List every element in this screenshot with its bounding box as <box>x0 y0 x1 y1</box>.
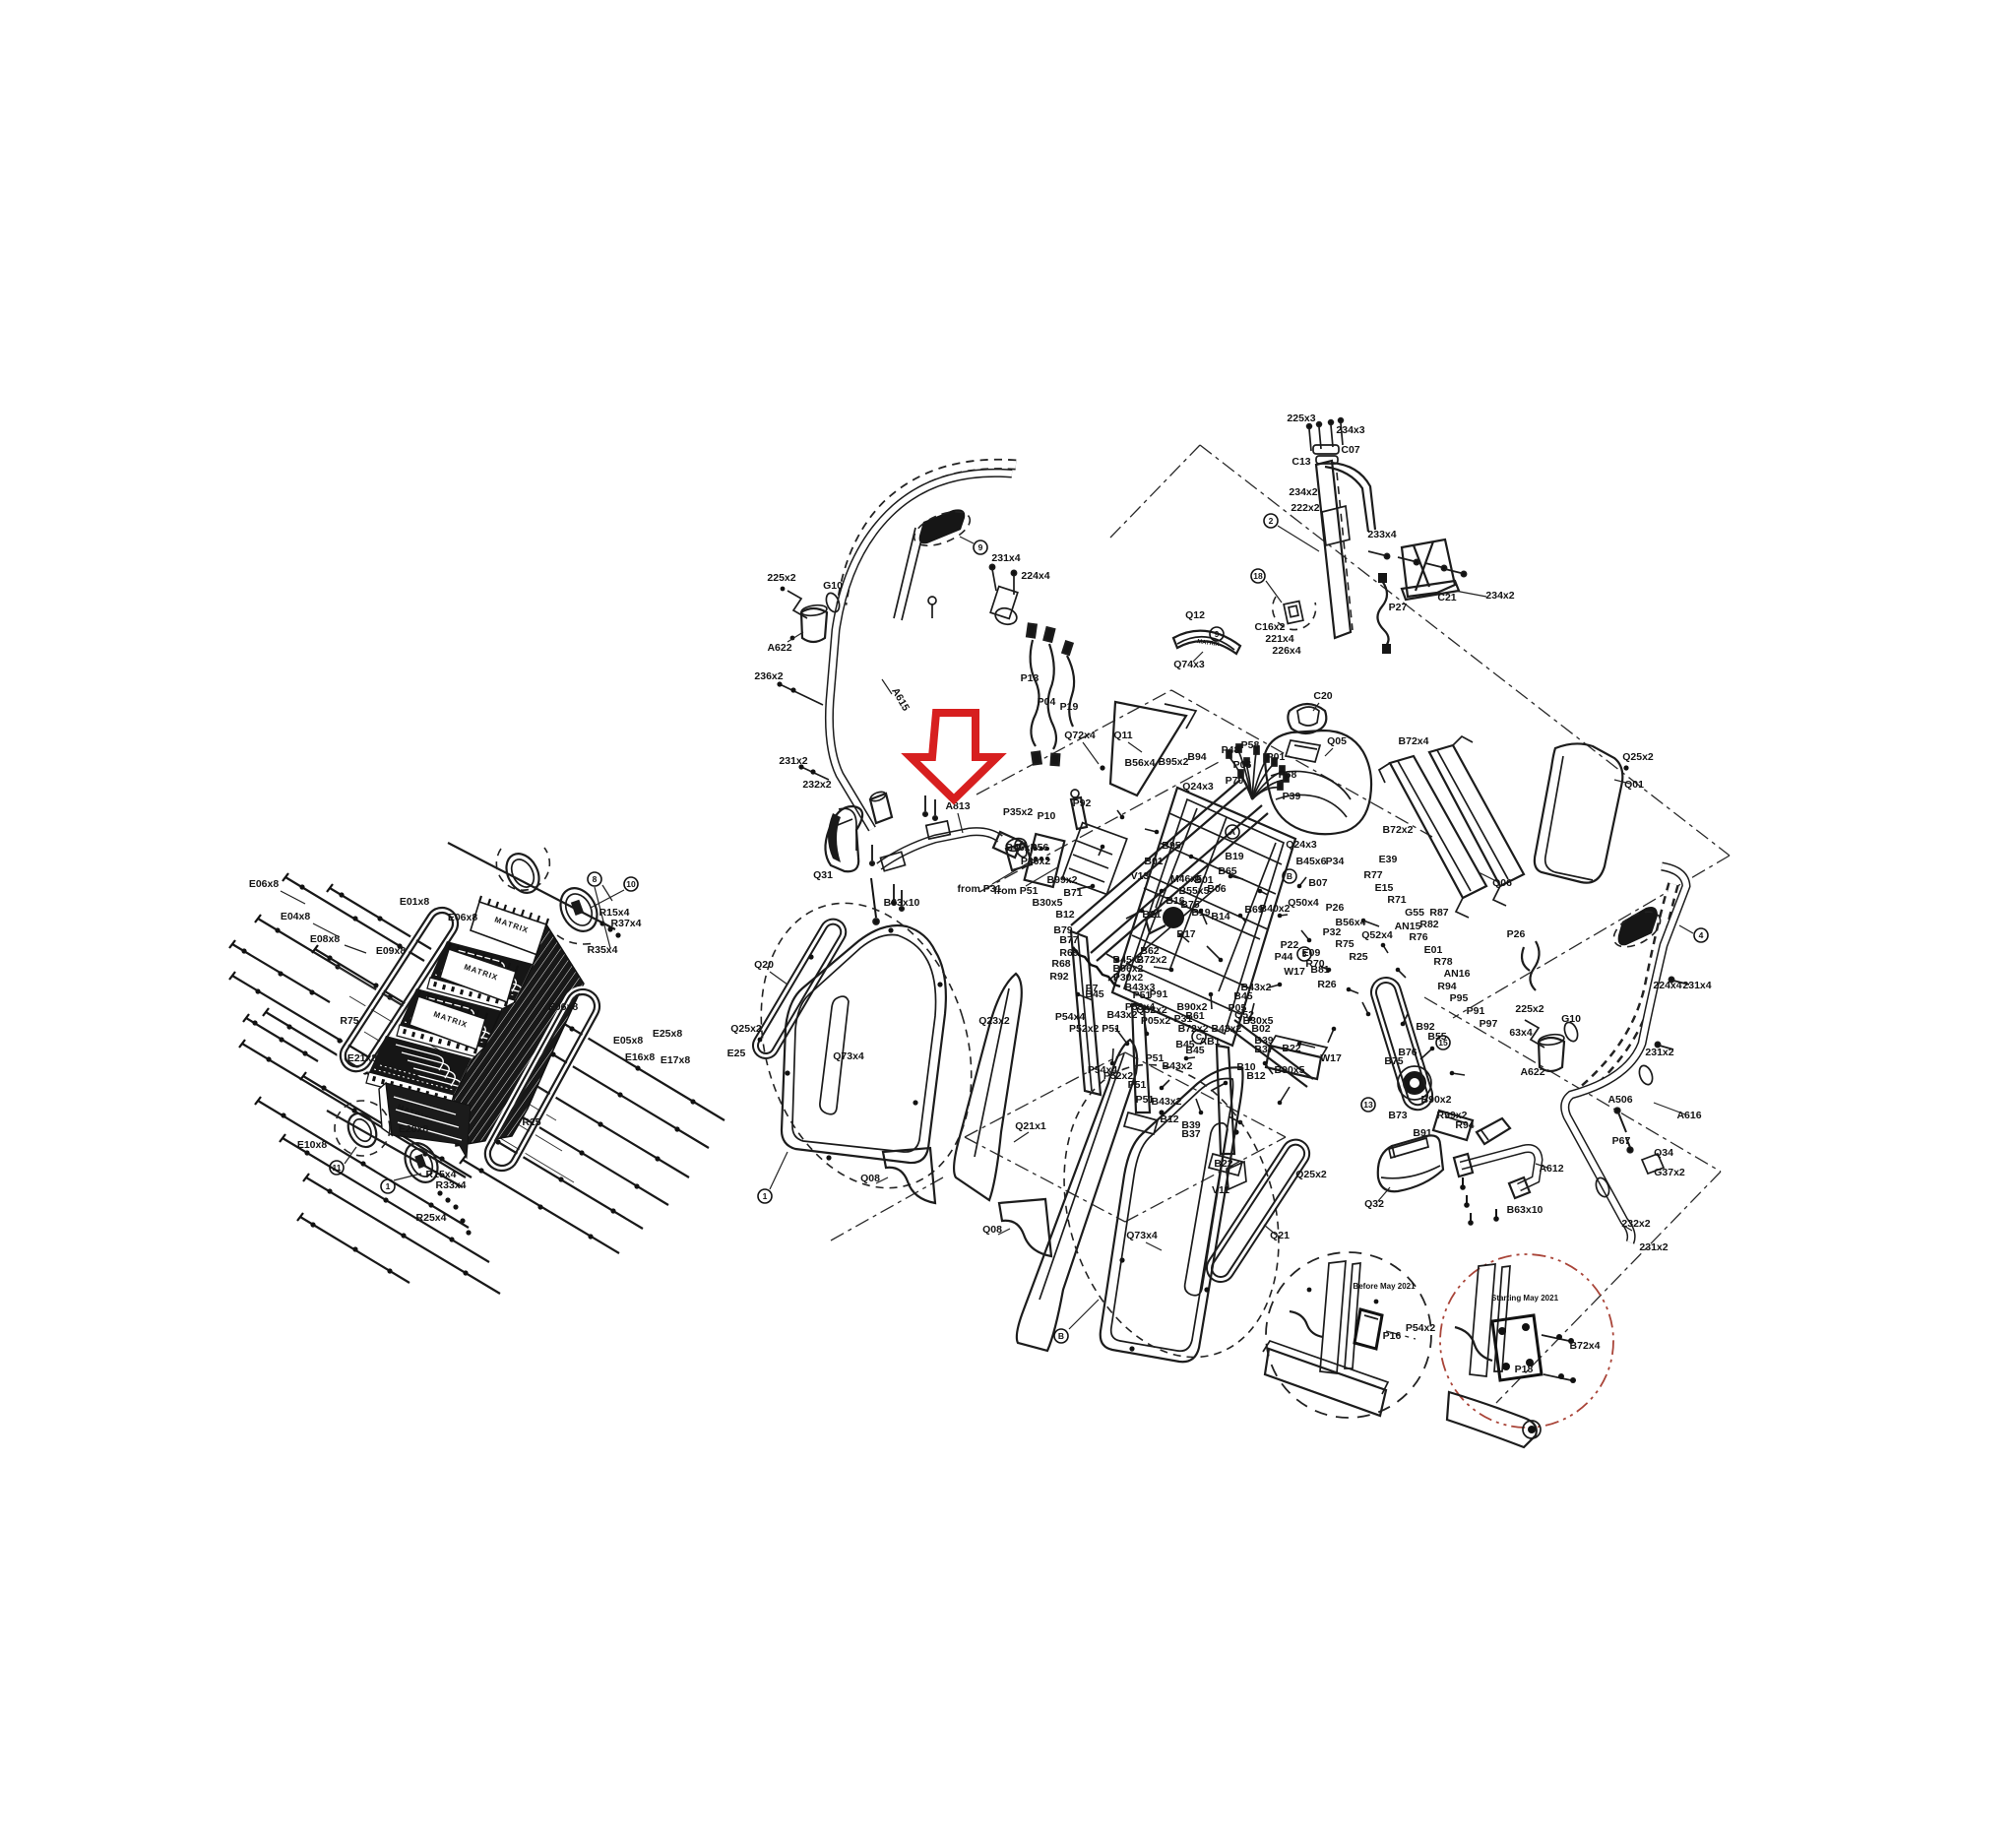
svg-text:B45x6: B45x6 <box>1296 856 1327 867</box>
svg-text:236x2: 236x2 <box>754 670 783 682</box>
svg-text:Q52x4: Q52x4 <box>1361 929 1393 941</box>
svg-text:G10: G10 <box>1561 1013 1581 1025</box>
svg-text:R77: R77 <box>1363 869 1382 881</box>
svg-text:E06x8: E06x8 <box>249 878 280 890</box>
svg-text:B: B <box>1058 1331 1064 1341</box>
svg-text:B99x2: B99x2 <box>1047 874 1078 886</box>
svg-text:231x2: 231x2 <box>779 755 807 767</box>
svg-text:P18: P18 <box>1515 1364 1534 1375</box>
svg-text:R94: R94 <box>1437 981 1456 992</box>
svg-text:221x4: 221x4 <box>1265 633 1293 645</box>
svg-text:13: 13 <box>1363 1100 1373 1110</box>
svg-text:P32: P32 <box>1323 926 1342 938</box>
svg-text:E04x8: E04x8 <box>281 911 311 922</box>
svg-text:B63x10: B63x10 <box>884 897 920 909</box>
svg-text:Q34: Q34 <box>1654 1147 1673 1159</box>
svg-text:A622: A622 <box>1520 1066 1544 1078</box>
svg-text:E21x8: E21x8 <box>347 1052 378 1064</box>
svg-text:R25x4: R25x4 <box>416 1212 447 1224</box>
svg-text:Q01: Q01 <box>1624 779 1644 791</box>
svg-text:P54x4: P54x4 <box>1055 1011 1086 1023</box>
svg-text:P27: P27 <box>1389 602 1408 613</box>
svg-text:B45: B45 <box>1185 1045 1204 1056</box>
svg-text:from P51: from P51 <box>994 885 1039 897</box>
svg-text:4: 4 <box>1699 930 1704 940</box>
svg-text:B37: B37 <box>1181 1128 1200 1140</box>
svg-text:234x2: 234x2 <box>1289 486 1317 498</box>
svg-text:Before May 2021: Before May 2021 <box>1353 1282 1416 1291</box>
svg-text:5: 5 <box>1302 949 1307 959</box>
svg-text:C20: C20 <box>1313 690 1332 702</box>
svg-text:P92: P92 <box>1073 797 1092 809</box>
svg-text:B07: B07 <box>1308 877 1327 889</box>
svg-text:231x2: 231x2 <box>1645 1047 1673 1058</box>
svg-text:225x2: 225x2 <box>767 572 795 584</box>
svg-text:B95: B95 <box>1162 840 1180 852</box>
svg-text:Q05: Q05 <box>1327 735 1347 747</box>
svg-text:R76: R76 <box>1409 931 1427 943</box>
svg-text:E01x8: E01x8 <box>400 896 430 908</box>
svg-text:P05x2: P05x2 <box>1141 1015 1171 1027</box>
svg-text:P26: P26 <box>1326 902 1345 914</box>
svg-text:P35x2: P35x2 <box>1003 806 1034 818</box>
svg-text:B21: B21 <box>1142 909 1161 921</box>
svg-text:Q50x4: Q50x4 <box>1288 897 1319 909</box>
svg-text:Starting May 2021: Starting May 2021 <box>1491 1294 1559 1303</box>
svg-text:R71: R71 <box>1387 894 1406 906</box>
svg-text:P36x2: P36x2 <box>1021 856 1051 867</box>
svg-text:W17: W17 <box>1284 966 1305 978</box>
svg-text:P58: P58 <box>1241 739 1260 751</box>
svg-text:B81: B81 <box>1310 964 1329 976</box>
svg-text:E20x8: E20x8 <box>399 1123 429 1135</box>
svg-text:AN16: AN16 <box>1444 968 1471 980</box>
svg-text:E09x8: E09x8 <box>376 945 407 957</box>
svg-text:P67: P67 <box>1612 1135 1631 1147</box>
svg-text:G10: G10 <box>823 580 843 592</box>
svg-text:B19: B19 <box>1225 851 1243 862</box>
svg-text:232x2: 232x2 <box>802 779 831 791</box>
svg-text:P7: P7 <box>1086 983 1099 994</box>
svg-text:R87: R87 <box>1429 907 1448 919</box>
svg-text:Q25x2: Q25x2 <box>730 1023 762 1035</box>
svg-text:C16x2: C16x2 <box>1255 621 1286 633</box>
svg-text:225x2: 225x2 <box>1515 1003 1543 1015</box>
svg-text:224x4: 224x4 <box>1021 570 1049 582</box>
svg-text:224x4: 224x4 <box>1653 980 1681 991</box>
svg-text:C21: C21 <box>1437 592 1456 604</box>
svg-text:234x3: 234x3 <box>1336 424 1364 436</box>
svg-text:232x2: 232x2 <box>1621 1218 1650 1230</box>
svg-text:A: A <box>1229 827 1235 837</box>
svg-text:B30x5: B30x5 <box>1033 897 1063 909</box>
svg-text:Q32: Q32 <box>1364 1198 1384 1210</box>
svg-text:B90x2: B90x2 <box>1421 1094 1452 1106</box>
svg-text:231x4: 231x4 <box>991 552 1020 564</box>
svg-text:18: 18 <box>1253 571 1263 581</box>
svg-text:Q73x4: Q73x4 <box>833 1050 864 1062</box>
svg-text:R33x4: R33x4 <box>436 1179 467 1191</box>
svg-text:B02: B02 <box>1251 1023 1270 1035</box>
svg-text:P51: P51 <box>1146 1052 1165 1064</box>
svg-text:Q21x1: Q21x1 <box>1015 1120 1046 1132</box>
svg-text:E06x8: E06x8 <box>448 912 478 923</box>
svg-text:A612: A612 <box>1539 1163 1563 1175</box>
svg-text:R25: R25 <box>522 1116 540 1128</box>
svg-text:E17x8: E17x8 <box>661 1054 691 1066</box>
svg-text:B77: B77 <box>1059 934 1078 946</box>
svg-text:226x4: 226x4 <box>1272 645 1300 657</box>
svg-text:C: C <box>1196 1032 1202 1042</box>
svg-text:E39: E39 <box>1379 854 1398 865</box>
svg-text:P54x2: P54x2 <box>1406 1322 1436 1334</box>
svg-text:R75: R75 <box>1335 938 1354 950</box>
svg-text:P56: P56 <box>1031 842 1049 854</box>
svg-text:P16: P16 <box>1383 1330 1402 1342</box>
svg-text:Q06: Q06 <box>1492 877 1512 889</box>
svg-text:R37x4: R37x4 <box>611 918 642 929</box>
svg-text:A506: A506 <box>1607 1094 1632 1106</box>
svg-text:B45: B45 <box>1233 990 1252 1002</box>
svg-text:Q25x2: Q25x2 <box>1295 1169 1327 1180</box>
svg-text:B40x2: B40x2 <box>1260 903 1291 915</box>
svg-text:225x3: 225x3 <box>1287 413 1315 424</box>
svg-text:G37x2: G37x2 <box>1654 1167 1685 1178</box>
svg-text:Q24x3: Q24x3 <box>1182 781 1214 793</box>
svg-text:2: 2 <box>1269 516 1274 526</box>
svg-text:P01: P01 <box>1267 751 1286 763</box>
svg-text:9: 9 <box>978 542 983 552</box>
svg-text:E05x8: E05x8 <box>613 1035 644 1047</box>
svg-text:231x4: 231x4 <box>1682 980 1711 991</box>
svg-text:B12: B12 <box>1055 909 1074 921</box>
svg-text:P10: P10 <box>1038 810 1056 822</box>
svg-text:1: 1 <box>386 1181 391 1191</box>
svg-text:E06x8: E06x8 <box>548 1001 579 1013</box>
svg-text:A622: A622 <box>767 642 791 654</box>
svg-text:10: 10 <box>626 879 636 889</box>
svg-text:B56x4: B56x4 <box>1125 757 1156 769</box>
svg-text:E16x8: E16x8 <box>625 1051 656 1063</box>
svg-text:Q23x2: Q23x2 <box>978 1015 1010 1027</box>
svg-text:B01: B01 <box>1194 874 1213 886</box>
svg-text:E10x8: E10x8 <box>297 1139 328 1151</box>
svg-text:P30x2: P30x2 <box>1113 972 1144 984</box>
svg-text:E01: E01 <box>1424 944 1443 956</box>
svg-text:R26: R26 <box>1317 979 1336 990</box>
svg-text:Q74x3: Q74x3 <box>1173 659 1205 670</box>
svg-text:P04: P04 <box>1038 696 1056 708</box>
svg-text:9: 9 <box>1215 629 1220 639</box>
svg-text:R35x4: R35x4 <box>588 944 618 956</box>
svg-text:222x2: 222x2 <box>1291 502 1319 514</box>
svg-text:P48: P48 <box>1222 744 1240 756</box>
svg-text:B37: B37 <box>1254 1044 1273 1055</box>
svg-text:P22: P22 <box>1281 939 1299 951</box>
svg-text:Q25x2: Q25x2 <box>1622 751 1654 763</box>
svg-text:Q12: Q12 <box>1185 609 1205 621</box>
svg-text:B65: B65 <box>1218 865 1236 877</box>
svg-text:P26: P26 <box>1507 928 1526 940</box>
svg-text:R25: R25 <box>1349 951 1367 963</box>
svg-text:Q20: Q20 <box>754 959 774 971</box>
svg-text:233x4: 233x4 <box>1367 529 1396 540</box>
svg-text:Q11: Q11 <box>1113 730 1132 741</box>
svg-text:A616: A616 <box>1676 1110 1701 1121</box>
svg-text:R94: R94 <box>1455 1119 1474 1131</box>
svg-text:R68: R68 <box>1051 958 1070 970</box>
svg-text:C13: C13 <box>1291 456 1310 468</box>
svg-text:P34: P34 <box>1326 856 1345 867</box>
svg-text:R92: R92 <box>1049 971 1068 983</box>
svg-text:V11: V11 <box>1212 1184 1229 1196</box>
svg-text:B76: B76 <box>1398 1047 1417 1058</box>
svg-text:P13: P13 <box>1021 672 1039 684</box>
svg-text:B72x4: B72x4 <box>1570 1340 1601 1352</box>
svg-text:R75: R75 <box>340 1015 358 1027</box>
svg-text:B95x2: B95x2 <box>1159 756 1189 768</box>
svg-text:234x2: 234x2 <box>1485 590 1514 602</box>
svg-text:15: 15 <box>1438 1038 1448 1048</box>
svg-text:P97: P97 <box>1480 1018 1498 1030</box>
svg-text:B63x10: B63x10 <box>1507 1204 1543 1216</box>
svg-text:B94: B94 <box>1187 751 1206 763</box>
svg-text:V13: V13 <box>1131 870 1150 882</box>
svg-text:B69: B69 <box>1244 904 1263 916</box>
svg-text:Q72x4: Q72x4 <box>1064 730 1096 741</box>
svg-text:B90x5: B90x5 <box>1275 1064 1305 1076</box>
svg-text:R82: R82 <box>1419 919 1438 930</box>
svg-text:B22: B22 <box>1282 1043 1300 1054</box>
svg-text:B19: B19 <box>1191 907 1210 919</box>
svg-text:11: 11 <box>333 1163 342 1173</box>
svg-text:1: 1 <box>763 1191 768 1201</box>
svg-text:B73: B73 <box>1388 1110 1407 1121</box>
svg-text:E25x8: E25x8 <box>653 1028 683 1040</box>
svg-text:B72x4: B72x4 <box>1399 735 1429 747</box>
svg-text:P91: P91 <box>1467 1005 1485 1017</box>
svg-text:P06: P06 <box>1233 759 1252 771</box>
svg-text:R78: R78 <box>1433 956 1452 968</box>
svg-text:P31: P31 <box>1174 1013 1193 1025</box>
svg-text:B71: B71 <box>1063 887 1082 899</box>
svg-text:Q24x3: Q24x3 <box>1286 839 1317 851</box>
svg-text:P52x2 P51: P52x2 P51 <box>1069 1023 1120 1035</box>
svg-text:B72x2: B72x2 <box>1383 824 1414 836</box>
svg-text:E25: E25 <box>727 1048 746 1059</box>
svg-text:B01: B01 <box>1144 856 1163 867</box>
svg-text:B: B <box>1287 871 1292 881</box>
svg-text:63x4: 63x4 <box>1509 1027 1533 1039</box>
svg-text:P95: P95 <box>1450 992 1469 1004</box>
svg-text:A813: A813 <box>945 800 970 812</box>
svg-text:P68: P68 <box>1279 769 1297 781</box>
svg-text:B17: B17 <box>1176 928 1195 940</box>
svg-text:Q73x4: Q73x4 <box>1126 1230 1158 1241</box>
svg-text:G55: G55 <box>1405 907 1424 919</box>
svg-text:Q31: Q31 <box>813 869 833 881</box>
svg-text:C07: C07 <box>1341 444 1359 456</box>
svg-text:B14: B14 <box>1211 911 1229 922</box>
svg-text:8: 8 <box>593 874 598 884</box>
svg-text:231x2: 231x2 <box>1639 1241 1668 1253</box>
svg-text:P19: P19 <box>1060 701 1079 713</box>
svg-text:B43x2: B43x2 <box>1107 1009 1138 1021</box>
svg-text:W17: W17 <box>1320 1052 1342 1064</box>
svg-text:P44: P44 <box>1275 951 1293 963</box>
svg-text:E15: E15 <box>1375 882 1394 894</box>
svg-text:P39: P39 <box>1283 791 1301 802</box>
